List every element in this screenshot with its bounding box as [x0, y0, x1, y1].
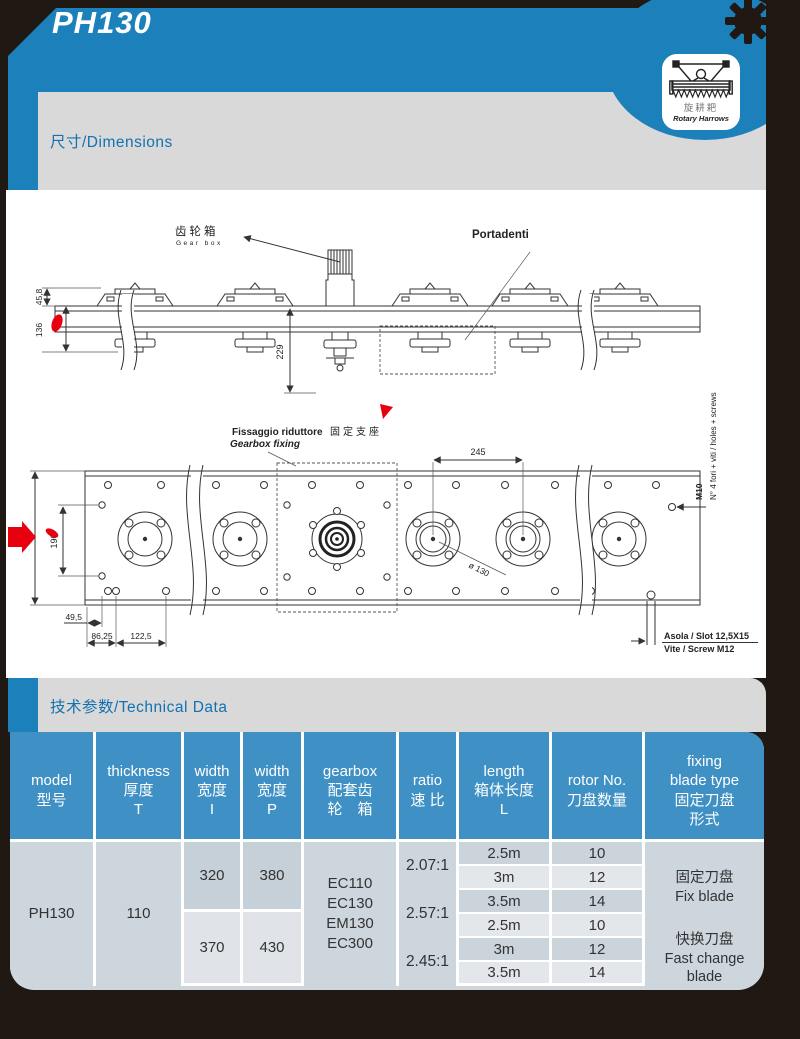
column-width-i: width 宽度 I 320 370 [184, 732, 240, 990]
svg-text:136: 136 [34, 323, 44, 337]
cell-blade-fast: 快换刀盘 Fast change blade [645, 928, 764, 990]
svg-text:49,5: 49,5 [65, 612, 82, 622]
svg-text:N° 4 fori + viti / holes + scr: N° 4 fori + viti / holes + screws [709, 392, 718, 500]
header-length: length 箱体长度 L [459, 732, 549, 839]
column-separator [93, 732, 96, 986]
header-width-i: width 宽度 I [184, 732, 240, 839]
column-separator [301, 732, 304, 986]
cell-thickness: 110 [96, 842, 181, 986]
cell-length-4: 2.5m [459, 914, 549, 938]
column-separator [642, 732, 645, 986]
technical-data-section: 技术参数/Technical Data [6, 678, 766, 732]
cell-rotor-6: 14 [552, 962, 642, 986]
svg-text:229: 229 [275, 344, 285, 359]
page-header: PH130 尺寸/Dimensions 旋 [6, 0, 766, 192]
cell-blade-fix: 固定刀盘 Fix blade [645, 860, 764, 916]
cell-ratio-1: 2.07:1 [399, 842, 456, 890]
cell-length-2: 3m [459, 866, 549, 890]
cell-width-p-1: 380 [243, 842, 301, 912]
column-separator [181, 732, 184, 986]
cell-length-3: 3.5m [459, 890, 549, 914]
red-arrow-left [8, 521, 36, 553]
column-separator [240, 732, 243, 986]
portadenti-label: Portadenti [472, 229, 529, 241]
cell-ratio-3: 2.45:1 [399, 938, 456, 986]
fixing-label-it: Fissaggio riduttore [232, 427, 323, 438]
column-separator [456, 732, 459, 986]
svg-text:Asola / Slot 12,5X15: Asola / Slot 12,5X15 [664, 631, 749, 641]
column-separator [549, 732, 552, 986]
header-thickness: thickness 厚度 T [96, 732, 181, 839]
gearbox-label-en: Gear box [176, 240, 223, 247]
header-gearbox: gearbox 配套齿 轮 箱 [304, 732, 396, 839]
column-model: model 型号 PH130 [10, 732, 93, 990]
section-technical-label: 技术参数/Technical Data [50, 695, 227, 717]
column-thickness: thickness 厚度 T 110 [96, 732, 181, 990]
cell-width-i-1: 320 [184, 842, 240, 912]
cell-length-5: 3m [459, 938, 549, 962]
cell-rotor-4: 10 [552, 914, 642, 938]
fixing-label-en: Gearbox fixing [230, 439, 300, 450]
gearbox-label-cn: 齿轮箱 [175, 224, 219, 238]
section-dimensions-label: 尺寸/Dimensions [50, 130, 173, 152]
cell-model: PH130 [10, 842, 93, 986]
cell-rotor-2: 12 [552, 866, 642, 890]
side-view-drawing: 齿轮箱 Gear box Portadenti 45,8 136 [34, 224, 700, 393]
header-ratio: ratio 速 比 [399, 732, 456, 839]
cell-rotor-5: 12 [552, 938, 642, 962]
badge-label-cn: 旋耕耙 [662, 103, 740, 114]
badge-label-en: Rotary Harrows [662, 114, 740, 123]
column-blade-type: fixing blade type 固定刀盘 形式 固定刀盘 Fix blade… [645, 732, 764, 990]
cell-width-i-2: 370 [184, 912, 240, 986]
cell-width-p-2: 430 [243, 912, 301, 986]
header-model: model 型号 [10, 732, 93, 839]
dimensions-drawing-area: 齿轮箱 Gear box Portadenti 45,8 136 [6, 190, 766, 678]
header-data-separator [10, 839, 764, 842]
red-triangle-marker [380, 404, 393, 419]
dim-45-8: 45,8 [34, 288, 101, 306]
left-blue-strip-2 [8, 678, 38, 732]
svg-text:122,5: 122,5 [130, 631, 152, 641]
column-ratio: ratio 速 比 2.07:1 2.57:1 2.45:1 [399, 732, 456, 990]
rotary-harrows-badge: 旋耕耙 Rotary Harrows [662, 54, 740, 130]
header-rotor-no: rotor No. 刀盘数量 [552, 732, 642, 839]
gear-icon [716, 0, 766, 50]
datasheet-page: PH130 尺寸/Dimensions 旋 [0, 0, 800, 1039]
column-gearbox: gearbox 配套齿 轮 箱 EC110 EC130 EM130 EC300 [304, 732, 396, 990]
fixing-label-cn: 固定支座 [330, 425, 382, 438]
svg-text:45,8: 45,8 [34, 288, 44, 305]
cell-rotor-3: 14 [552, 890, 642, 914]
svg-text:86,25: 86,25 [91, 631, 113, 641]
cell-length-1: 2.5m [459, 842, 549, 866]
column-separator [396, 732, 399, 986]
cell-rotor-1: 10 [552, 842, 642, 866]
rotary-harrow-icon [669, 59, 733, 103]
page-title: PH130 [52, 6, 152, 40]
plan-view-drawing: Fissaggio riduttore Gearbox fixing 固定支座 … [8, 392, 758, 654]
column-length: length 箱体长度 L 2.5m 3m 3.5m 2.5m 3m 3.5m [459, 732, 549, 990]
svg-text:M10: M10 [694, 483, 704, 500]
cell-gearbox: EC110 EC130 EM130 EC300 [304, 842, 396, 986]
header-width-p: width 宽度 P [243, 732, 301, 839]
svg-text:Vite / Screw M12: Vite / Screw M12 [664, 644, 734, 654]
header-blade-type: fixing blade type 固定刀盘 形式 [645, 732, 764, 839]
column-rotor-no: rotor No. 刀盘数量 10 12 14 10 12 14 [552, 732, 642, 990]
svg-text:245: 245 [470, 447, 485, 457]
cell-ratio-2: 2.57:1 [399, 890, 456, 938]
technical-data-table: model 型号 PH130 thickness 厚度 T 110 width … [10, 732, 764, 990]
column-width-p: width 宽度 P 380 430 [243, 732, 301, 990]
cell-length-6: 3.5m [459, 962, 549, 986]
